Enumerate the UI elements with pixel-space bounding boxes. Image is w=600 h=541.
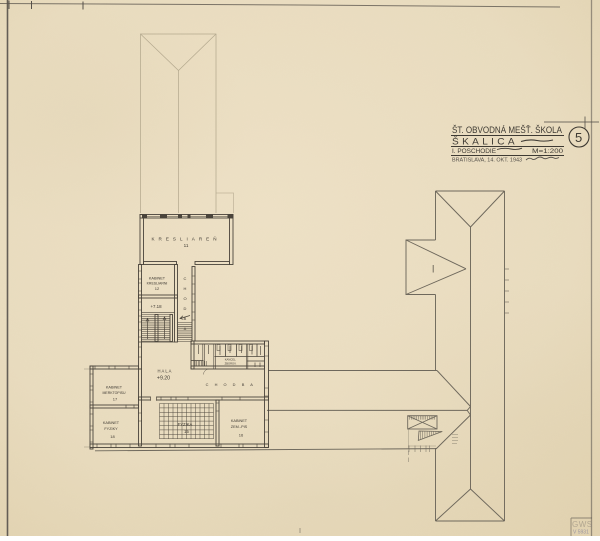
- svg-text:D: D: [233, 382, 236, 387]
- svg-text:KANCEL.: KANCEL.: [225, 358, 237, 362]
- svg-text:KRESLIAREŇ: KRESLIAREŇ: [151, 236, 220, 242]
- svg-text:16: 16: [239, 433, 244, 438]
- svg-text:KABINET: KABINET: [103, 421, 120, 425]
- svg-text:17: 17: [113, 397, 118, 402]
- svg-text:11: 11: [184, 243, 189, 248]
- svg-text:KABINET: KABINET: [149, 277, 166, 281]
- svg-text:A: A: [250, 382, 253, 387]
- svg-text:BRATISLAVA, 14. OKT. 1943: BRATISLAVA, 14. OKT. 1943: [452, 158, 522, 164]
- svg-text:15: 15: [184, 429, 189, 434]
- svg-text:MERKTOPISU: MERKTOPISU: [102, 391, 126, 395]
- svg-text:KRESLIARNI: KRESLIARNI: [147, 282, 168, 286]
- svg-text:+7.18: +7.18: [150, 304, 162, 309]
- svg-text:O: O: [183, 296, 186, 301]
- svg-text:GWS: GWS: [572, 520, 593, 529]
- svg-text:+9.20: +9.20: [157, 376, 170, 382]
- svg-text:H: H: [184, 286, 187, 291]
- svg-text:C: C: [184, 276, 187, 281]
- svg-text:ŠKALICA: ŠKALICA: [452, 137, 518, 147]
- svg-text:18: 18: [110, 434, 115, 439]
- svg-text:ŠT. OBVODNÁ MEŠŤ. ŠKOLA: ŠT. OBVODNÁ MEŠŤ. ŠKOLA: [452, 125, 562, 135]
- svg-text:ZBOROV.: ZBOROV.: [225, 362, 237, 366]
- svg-text:H: H: [215, 382, 218, 387]
- svg-text:FYZIKY: FYZIKY: [104, 427, 118, 431]
- svg-text:I. POSCHODIE: I. POSCHODIE: [452, 148, 496, 155]
- svg-text:5: 5: [575, 130, 582, 145]
- svg-text:KABINET: KABINET: [106, 386, 123, 390]
- svg-text:HALA: HALA: [158, 369, 173, 374]
- svg-text:M=1:200: M=1:200: [532, 148, 563, 155]
- svg-text:ZEM.-PIS: ZEM.-PIS: [231, 425, 248, 429]
- svg-text:C: C: [206, 382, 209, 387]
- svg-text:12: 12: [155, 286, 160, 291]
- svg-text:V 5931: V 5931: [573, 530, 589, 536]
- svg-text:B: B: [242, 382, 245, 387]
- svg-text:D: D: [184, 306, 187, 311]
- svg-text:KABINET: KABINET: [231, 419, 248, 423]
- svg-text:FYZIKA: FYZIKA: [178, 422, 193, 427]
- svg-text:O: O: [223, 382, 226, 387]
